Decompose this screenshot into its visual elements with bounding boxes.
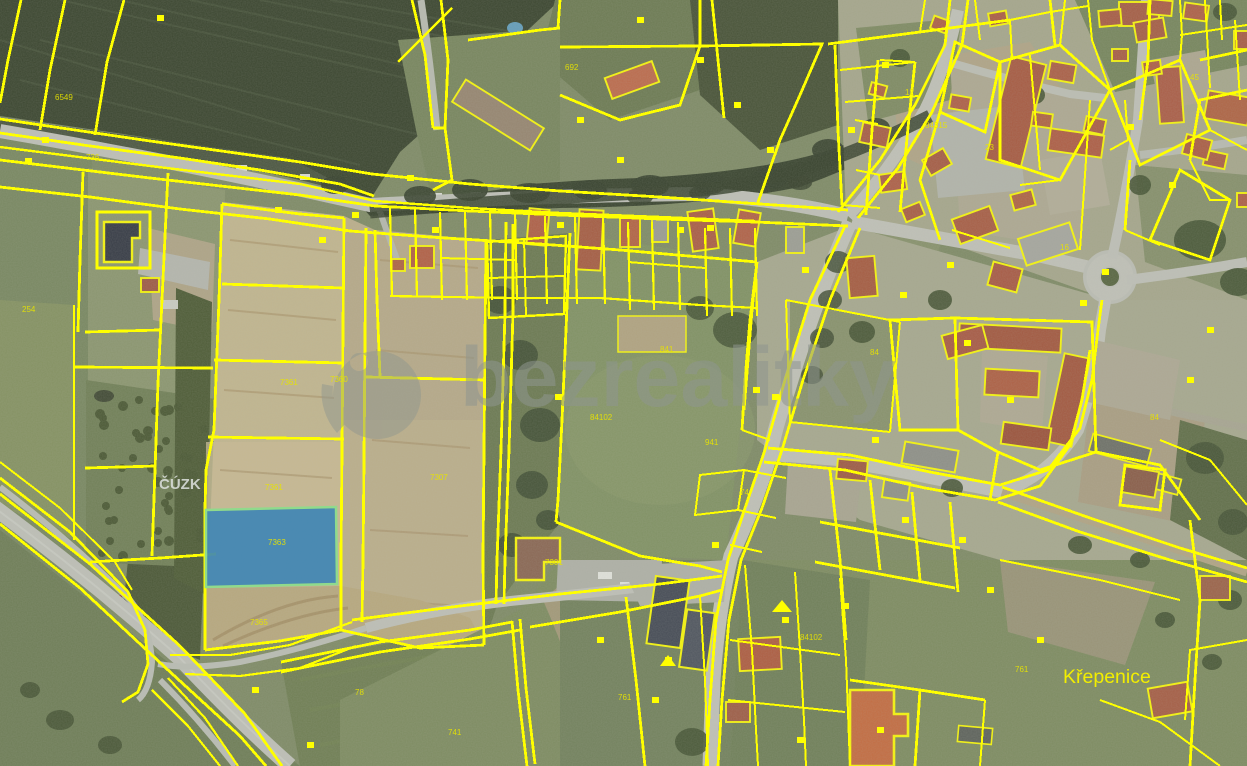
svg-text:84102: 84102 (590, 413, 613, 422)
svg-text:74: 74 (740, 488, 749, 497)
svg-text:7307: 7307 (430, 473, 448, 482)
svg-text:84: 84 (1150, 413, 1159, 422)
svg-text:84: 84 (870, 348, 879, 357)
svg-text:84102: 84102 (800, 633, 823, 642)
svg-text:ČÚZK: ČÚZK (159, 475, 201, 493)
svg-text:12: 12 (905, 88, 914, 97)
svg-text:bezrealitky: bezrealitky (460, 330, 896, 424)
svg-text:23: 23 (985, 143, 994, 152)
svg-text:761: 761 (618, 693, 632, 702)
svg-text:45: 45 (1190, 73, 1199, 82)
svg-text:7363: 7363 (268, 538, 286, 547)
svg-text:78: 78 (355, 688, 364, 697)
svg-text:16: 16 (1060, 243, 1069, 252)
svg-text:692: 692 (565, 63, 579, 72)
svg-text:7365: 7365 (250, 618, 268, 627)
svg-text:7360: 7360 (330, 375, 348, 384)
svg-text:6549: 6549 (55, 93, 73, 102)
svg-text:Křepenice: Křepenice (1063, 666, 1151, 688)
svg-text:84315: 84315 (925, 121, 948, 130)
svg-text:761: 761 (1015, 665, 1029, 674)
svg-text:7301: 7301 (545, 558, 563, 567)
svg-text:7361: 7361 (265, 483, 283, 492)
svg-text:254: 254 (22, 305, 36, 314)
svg-text:7361: 7361 (280, 378, 298, 387)
svg-text:841: 841 (660, 345, 674, 354)
svg-text:741: 741 (448, 728, 462, 737)
svg-text:736: 736 (86, 153, 100, 162)
svg-text:941: 941 (705, 438, 719, 447)
